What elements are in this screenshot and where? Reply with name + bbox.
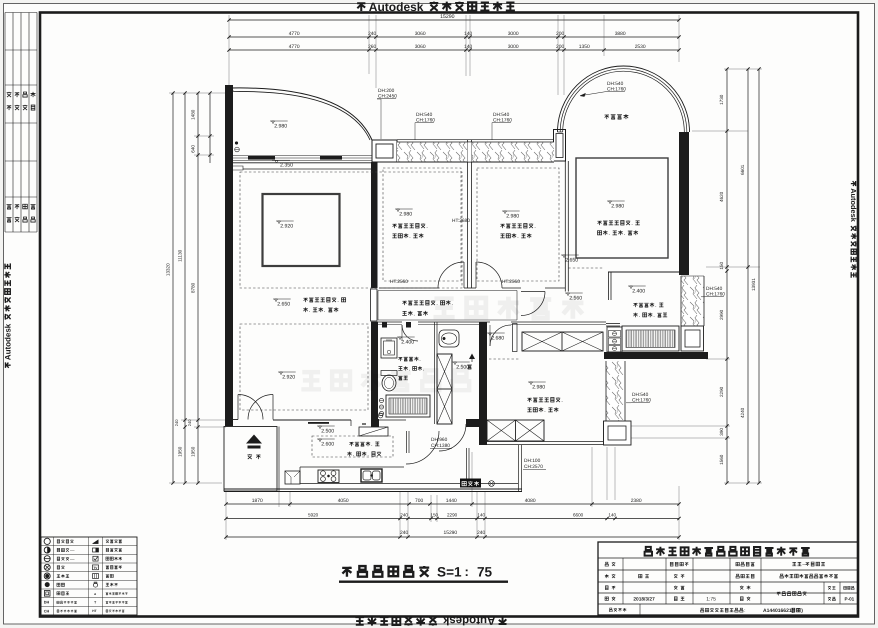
svg-text:DH:960: DH:960 (431, 437, 448, 443)
svg-text:200: 200 (556, 44, 564, 50)
svg-text:2.500: 2.500 (321, 429, 334, 435)
svg-text:2.600: 2.600 (321, 442, 334, 448)
svg-text:A144016621(: A144016621( (763, 608, 794, 614)
svg-text:2290: 2290 (447, 513, 458, 518)
svg-text:DH:540: DH:540 (493, 112, 510, 118)
svg-text:11130: 11130 (178, 249, 183, 262)
svg-text:4080: 4080 (525, 498, 536, 504)
svg-text:3060: 3060 (415, 31, 426, 37)
svg-text:3060: 3060 (415, 44, 426, 50)
svg-text:HT:2560: HT:2560 (502, 279, 520, 285)
svg-text:a: a (94, 592, 96, 596)
svg-text:DH:540: DH:540 (416, 112, 433, 118)
svg-text:2.980: 2.980 (506, 214, 519, 220)
svg-text:2018/3/27: 2018/3/27 (633, 597, 655, 603)
svg-text:200: 200 (556, 31, 564, 37)
svg-text:2.920: 2.920 (280, 224, 293, 230)
svg-text:CH:2570: CH:2570 (524, 464, 543, 470)
svg-text:240: 240 (187, 419, 192, 426)
svg-text:2290: 2290 (719, 386, 724, 397)
svg-text:240: 240 (400, 530, 408, 536)
svg-text:13320: 13320 (166, 263, 171, 276)
svg-text:1870: 1870 (252, 498, 263, 504)
svg-text:240: 240 (400, 513, 408, 518)
svg-text:Autodesk: Autodesk (849, 188, 858, 223)
svg-text:4770: 4770 (289, 44, 300, 50)
svg-text:2.980: 2.980 (532, 385, 545, 391)
svg-text:140: 140 (464, 31, 472, 37)
svg-text:260: 260 (368, 44, 376, 50)
svg-text:2.980: 2.980 (274, 124, 287, 130)
svg-text:4240: 4240 (740, 407, 745, 418)
svg-text:15290: 15290 (444, 530, 458, 536)
svg-text:—: — (70, 548, 75, 553)
svg-text:140: 140 (608, 513, 616, 518)
svg-text:CH: CH (44, 609, 50, 613)
svg-text:2.400: 2.400 (632, 289, 645, 295)
svg-text:390: 390 (719, 428, 724, 436)
svg-text:1730: 1730 (719, 94, 724, 105)
svg-text:2.400: 2.400 (401, 340, 414, 346)
svg-text:DH:100: DH:100 (524, 458, 541, 464)
svg-text:1480: 1480 (191, 109, 196, 120)
svg-text:150: 150 (719, 261, 724, 269)
svg-text:HT:2680: HT:2680 (452, 218, 470, 224)
svg-text:2.350: 2.350 (280, 163, 293, 169)
svg-text:DH:540: DH:540 (632, 392, 649, 398)
svg-text:2.920: 2.920 (282, 375, 295, 381)
svg-text:Autodesk: Autodesk (369, 0, 424, 14)
svg-text:HT: HT (92, 609, 96, 613)
svg-text:1560: 1560 (719, 454, 724, 465)
svg-text:6600: 6600 (573, 513, 584, 518)
svg-text:4770: 4770 (289, 31, 300, 37)
svg-text:CH:1380: CH:1380 (431, 443, 450, 449)
svg-text:150: 150 (430, 513, 438, 518)
svg-text::: : (744, 608, 745, 614)
svg-text:140: 140 (464, 44, 472, 50)
svg-text:6601: 6601 (740, 164, 745, 175)
svg-text:640: 640 (191, 145, 196, 153)
svg-text:Autodesk: Autodesk (442, 614, 495, 626)
svg-text:13931: 13931 (751, 278, 756, 291)
svg-text:2.650: 2.650 (277, 302, 290, 308)
svg-text:240: 240 (368, 31, 376, 37)
svg-text:2380: 2380 (631, 498, 642, 504)
svg-text:DH: DH (44, 601, 50, 605)
svg-text:140: 140 (477, 513, 485, 518)
svg-text:2990: 2990 (719, 309, 724, 320)
svg-text:700: 700 (415, 498, 423, 504)
svg-text:DH:540: DH:540 (607, 81, 624, 87)
svg-text:DH:200: DH:200 (378, 88, 395, 94)
svg-text:2530: 2530 (635, 44, 646, 50)
svg-text:1950: 1950 (178, 446, 183, 457)
svg-text:1:75: 1:75 (706, 597, 716, 603)
svg-text:5920: 5920 (308, 513, 319, 518)
svg-text:2.680: 2.680 (491, 336, 504, 342)
svg-text:2.650: 2.650 (565, 258, 578, 264)
svg-text:3000: 3000 (508, 44, 519, 50)
svg-text:240: 240 (174, 419, 179, 426)
svg-text:3880: 3880 (615, 31, 626, 37)
svg-text:4620: 4620 (719, 191, 724, 202)
svg-text:15290: 15290 (440, 14, 455, 20)
svg-text:—: — (70, 556, 75, 561)
svg-text:1950: 1950 (191, 446, 196, 457)
svg-text:2.980: 2.980 (611, 204, 624, 210)
svg-text:HT:2560: HT:2560 (390, 279, 408, 285)
svg-text:75: 75 (477, 565, 493, 580)
svg-text:3000: 3000 (508, 31, 519, 37)
svg-text:4050: 4050 (338, 498, 349, 504)
svg-text::: : (465, 564, 469, 579)
svg-text:8780: 8780 (191, 282, 196, 293)
svg-text:2.980: 2.980 (399, 212, 412, 218)
svg-text:1350: 1350 (579, 44, 590, 50)
svg-text:1440: 1440 (446, 498, 457, 504)
svg-text:240: 240 (477, 530, 485, 536)
svg-text:DH:540: DH:540 (706, 286, 723, 292)
svg-text:S=1: S=1 (437, 565, 462, 580)
svg-text:P-01: P-01 (845, 597, 855, 602)
svg-text:Autodesk: Autodesk (4, 323, 13, 360)
